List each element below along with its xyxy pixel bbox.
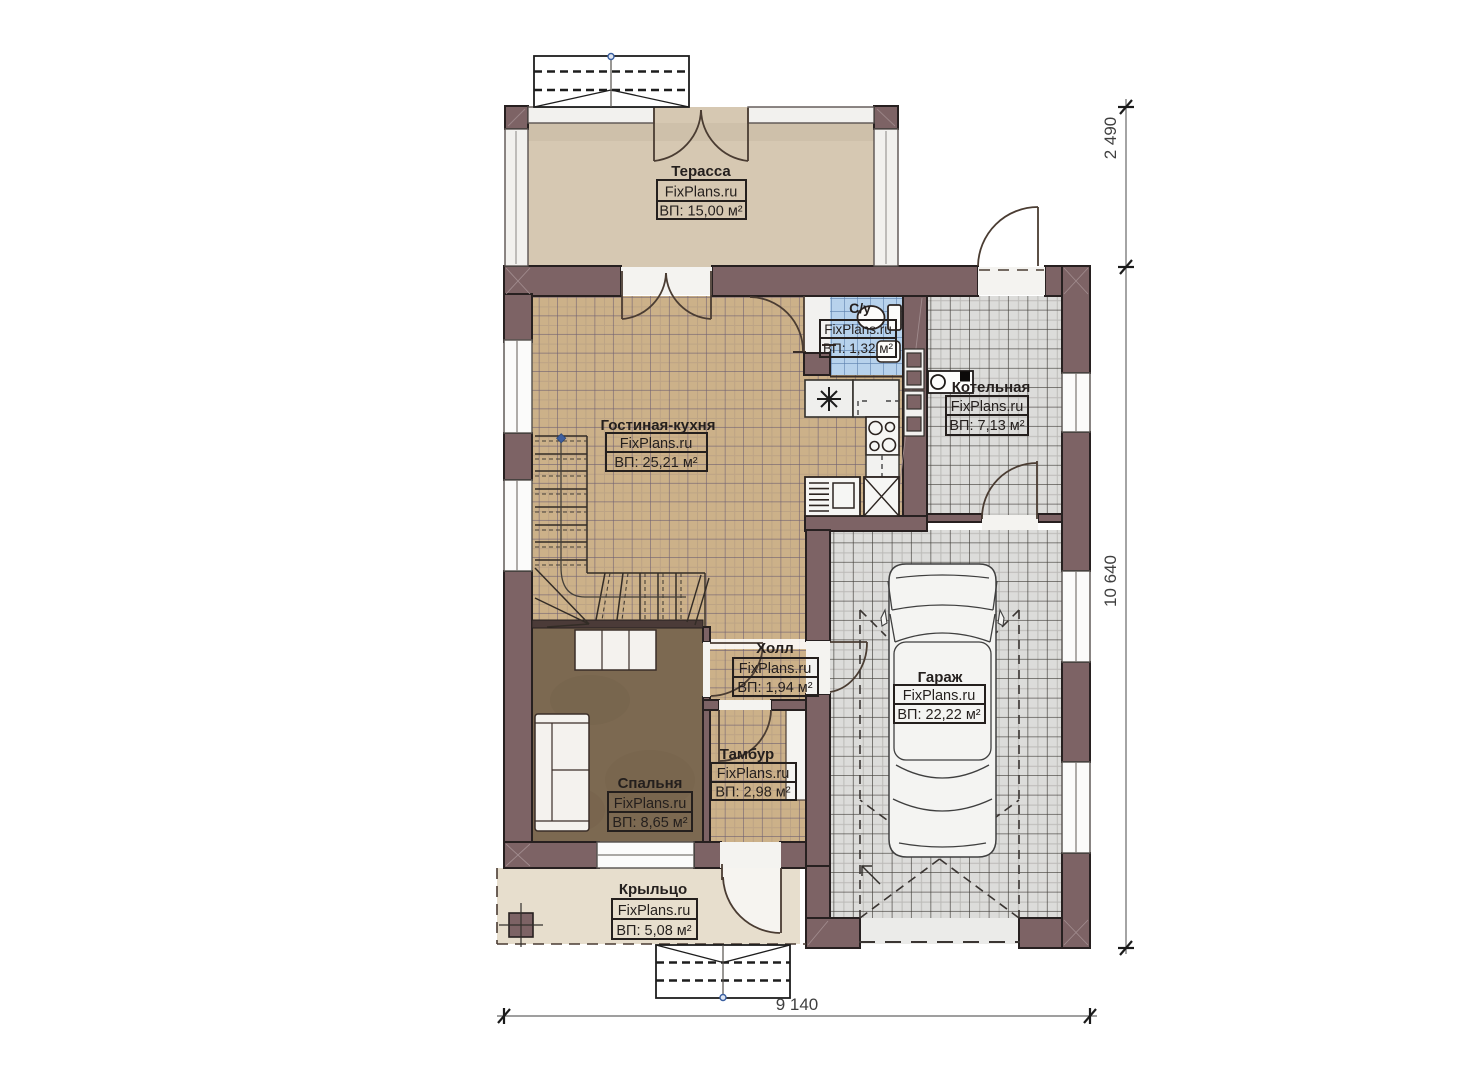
svg-text:Котельная: Котельная xyxy=(952,379,1031,396)
svg-text:9 140: 9 140 xyxy=(776,995,819,1014)
svg-text:ВП: 8,65 м²: ВП: 8,65 м² xyxy=(612,815,687,831)
svg-text:ВП: 1,94 м²: ВП: 1,94 м² xyxy=(737,680,812,696)
svg-text:Крыльцо: Крыльцо xyxy=(619,881,687,898)
svg-text:FixPlans.ru: FixPlans.ru xyxy=(903,688,976,704)
svg-text:ВП: 1,32 м²: ВП: 1,32 м² xyxy=(823,341,894,356)
svg-text:FixPlans.ru: FixPlans.ru xyxy=(665,185,738,201)
svg-text:Холл: Холл xyxy=(756,640,794,657)
svg-text:Тамбур: Тамбур xyxy=(720,746,774,763)
svg-text:FixPlans.ru: FixPlans.ru xyxy=(618,903,691,919)
svg-text:Спальня: Спальня xyxy=(618,775,683,792)
svg-text:Гостиная-кухня: Гостиная-кухня xyxy=(601,417,716,434)
svg-text:ВП: 25,21 м²: ВП: 25,21 м² xyxy=(614,455,697,471)
svg-text:FixPlans.ru: FixPlans.ru xyxy=(739,661,812,677)
svg-text:Гараж: Гараж xyxy=(918,669,963,686)
svg-text:2 490: 2 490 xyxy=(1101,117,1120,160)
svg-text:FixPlans.ru: FixPlans.ru xyxy=(620,436,693,452)
svg-text:ВП: 5,08 м²: ВП: 5,08 м² xyxy=(616,923,691,939)
svg-text:FixPlans.ru: FixPlans.ru xyxy=(951,399,1024,415)
svg-text:FixPlans.ru: FixPlans.ru xyxy=(717,766,790,782)
svg-text:10 640: 10 640 xyxy=(1101,555,1120,607)
svg-text:ВП: 2,98 м²: ВП: 2,98 м² xyxy=(715,785,790,801)
svg-text:ВП: 7,13 м²: ВП: 7,13 м² xyxy=(949,418,1024,434)
svg-text:ВП: 15,00 м²: ВП: 15,00 м² xyxy=(659,204,742,220)
svg-text:FixPlans.ru: FixPlans.ru xyxy=(824,322,892,337)
svg-text:Терасса: Терасса xyxy=(671,163,731,180)
svg-text:ВП: 22,22 м²: ВП: 22,22 м² xyxy=(897,707,980,723)
svg-text:FixPlans.ru: FixPlans.ru xyxy=(614,796,687,812)
svg-text:С/у: С/у xyxy=(849,300,871,316)
